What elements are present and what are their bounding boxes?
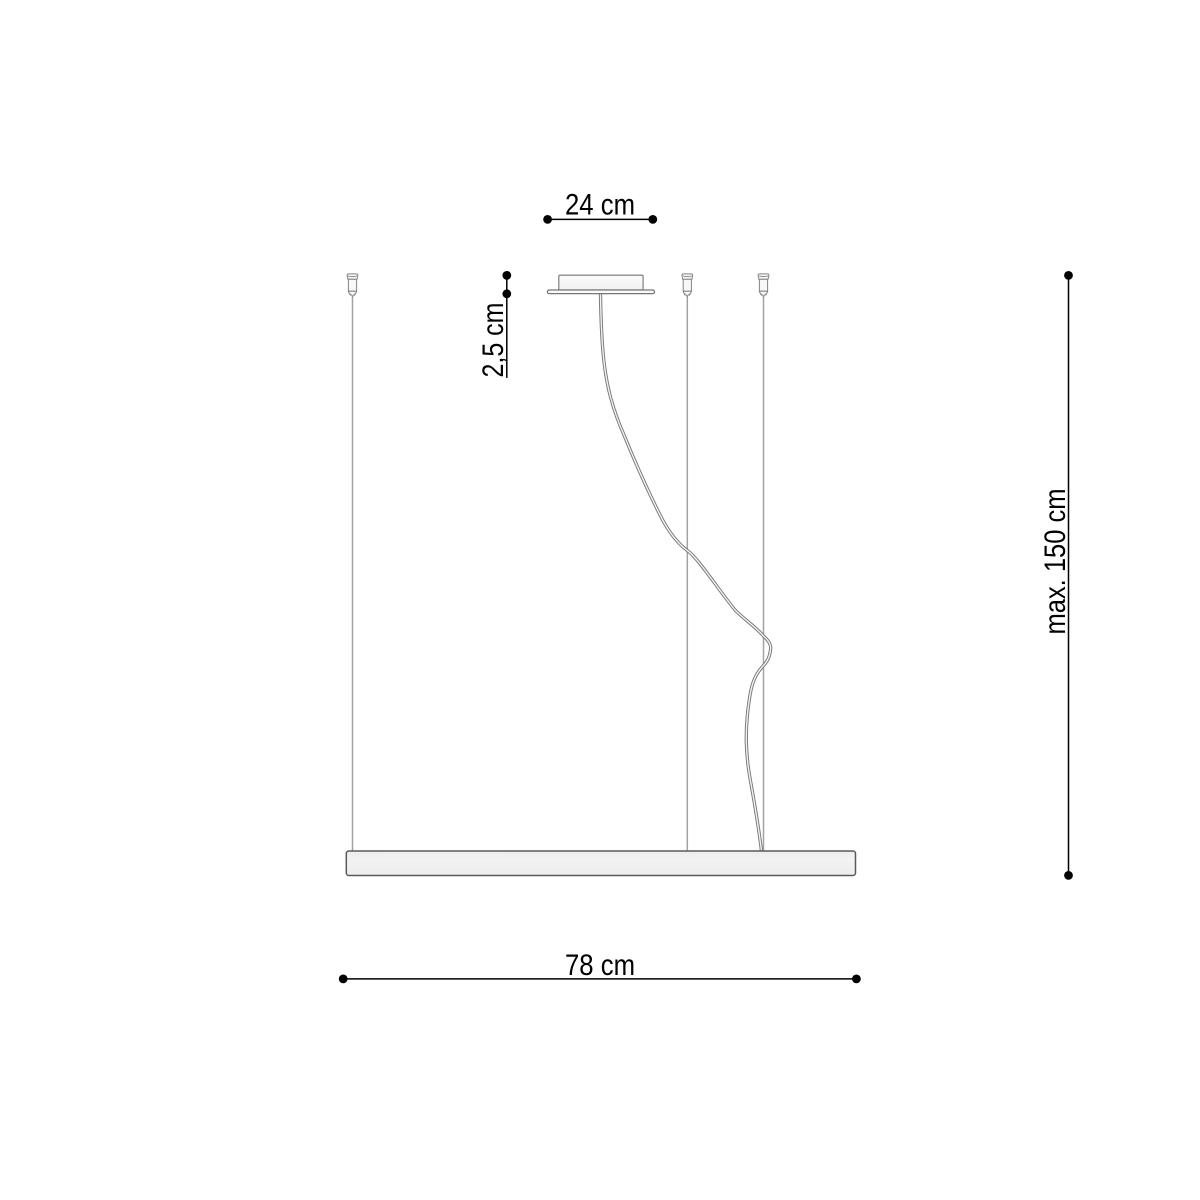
svg-text:78 cm: 78 cm bbox=[565, 949, 635, 982]
svg-text:2,5 cm: 2,5 cm bbox=[477, 303, 510, 378]
svg-text:max. 150 cm: max. 150 cm bbox=[1039, 489, 1072, 635]
svg-text:24 cm: 24 cm bbox=[565, 189, 635, 222]
